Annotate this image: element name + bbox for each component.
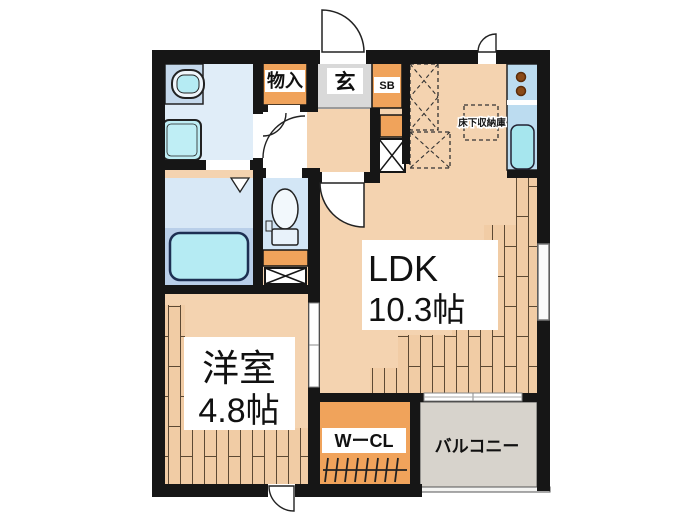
hall-closet-box [380,115,403,137]
wall [402,58,410,164]
western-room-door-swing [269,486,294,511]
storage-label: 物入 [267,70,303,91]
western-room-area-label: 4.8帖 [198,392,279,430]
bathroom [165,178,253,285]
wcl-label: WーCL [335,431,394,451]
wall [307,58,318,112]
balcony: バルコニー [420,402,550,492]
ldk-label: LDK [368,248,438,289]
toilet-handle [266,221,272,231]
entrance-label: 玄 [335,70,356,94]
underfloor-storage-label: 床下収納庫 [458,117,506,129]
storage-closet: 物入 [263,58,307,105]
wall [152,285,320,294]
stove-burner-icon [517,73,526,82]
floor-plan: 物入 玄 SB 床下収納庫 WーCL [0,0,700,525]
ldk-area-label: 10.3帖 [368,291,465,328]
floor-plan-canvas: 物入 玄 SB 床下収納庫 WーCL [0,0,700,525]
ldk-door-opening [322,172,364,183]
toilet-bowl [272,189,298,229]
wood-flooring-patch [370,368,398,393]
wall [370,108,380,183]
washroom [163,64,253,160]
side-window [538,244,549,320]
washbasin-bowl [177,75,199,93]
storage-door-opening [268,105,300,112]
wood-flooring-patch [516,178,537,225]
front-door-swing [322,10,364,52]
wall [410,402,420,487]
western-room-label: 洋室 [202,348,276,389]
kitchen-door-swing [478,34,496,52]
toilet-counter [263,250,308,266]
outer-wall-left [152,50,165,497]
bathroom-door-opening [206,160,250,170]
wood-flooring-patch [398,335,537,393]
wood-flooring-patch [165,305,185,428]
walk-in-closet: WーCL [320,402,410,484]
stove-burner-icon [517,87,526,96]
entrance-area: 玄 [318,64,372,108]
balcony-label: バルコニー [435,437,520,456]
toilet-door-opening [266,168,302,178]
toilet-room [263,178,308,284]
counter-divider [507,100,538,105]
washroom-door-opening [253,114,263,158]
washer-pan [163,120,201,160]
wood-flooring-patch [165,428,308,484]
wall [507,170,538,178]
bathtub [170,233,248,280]
toilet-tank [272,229,298,245]
balcony-railing [420,487,550,492]
kitchen-sink [511,125,534,169]
shoe-box-label: SB [379,80,394,92]
